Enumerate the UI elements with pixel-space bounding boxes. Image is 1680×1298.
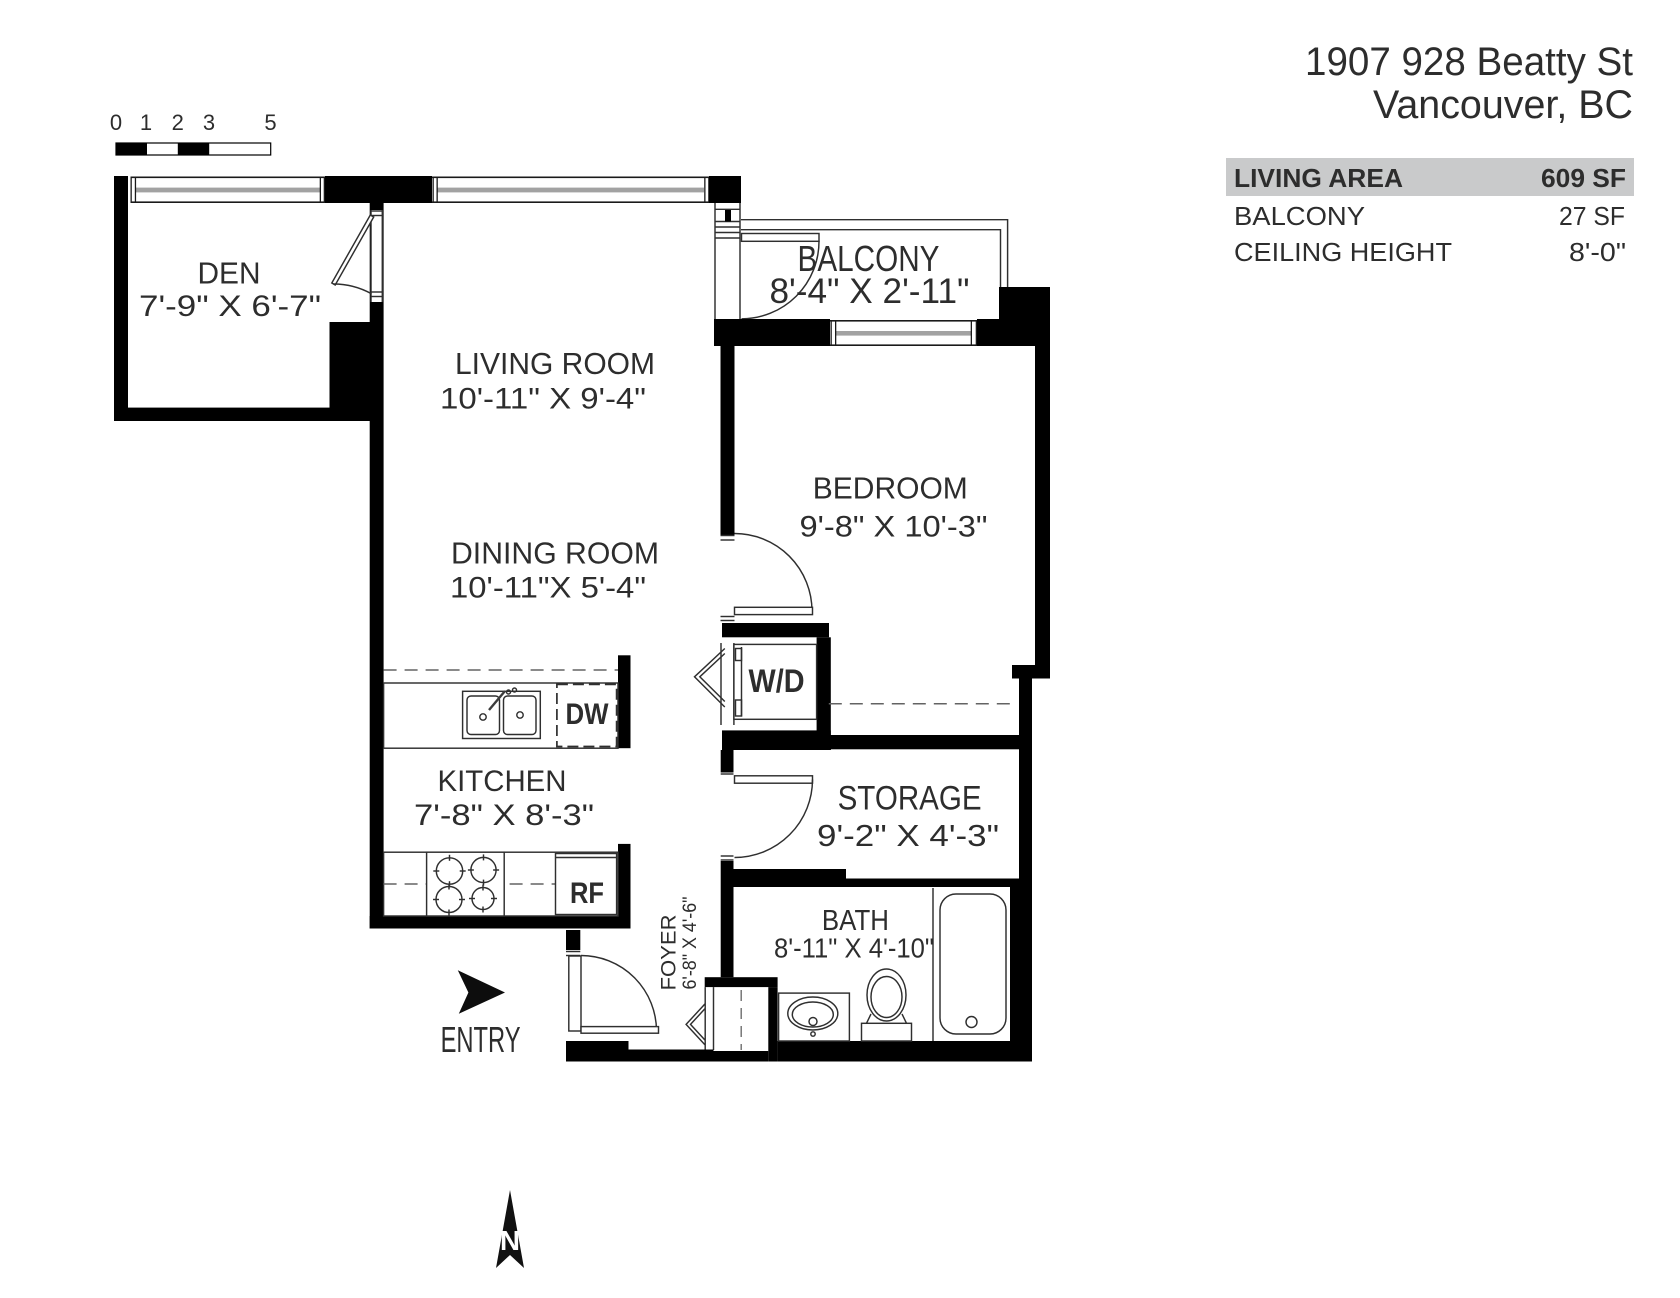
svg-text:10'-11"X 5'-4": 10'-11"X 5'-4" (450, 572, 646, 605)
svg-text:BALCONY: BALCONY (1234, 201, 1365, 231)
svg-text:BEDROOM: BEDROOM (813, 470, 968, 505)
svg-text:2: 2 (172, 110, 184, 135)
svg-text:ENTRY: ENTRY (441, 1019, 521, 1060)
svg-text:1: 1 (140, 110, 152, 135)
svg-text:CEILING HEIGHT: CEILING HEIGHT (1234, 237, 1452, 267)
svg-text:DEN: DEN (198, 256, 261, 291)
svg-text:LIVING ROOM: LIVING ROOM (455, 346, 655, 381)
svg-text:N: N (500, 1225, 520, 1256)
svg-text:7'-8" X 8'-3": 7'-8" X 8'-3" (414, 799, 594, 832)
svg-text:KITCHEN: KITCHEN (438, 765, 567, 798)
svg-text:STORAGE: STORAGE (838, 780, 982, 818)
svg-text:9'-8" X 10'-3": 9'-8" X 10'-3" (800, 511, 988, 544)
svg-text:LIVING AREA: LIVING AREA (1234, 163, 1403, 193)
svg-text:W/D: W/D (749, 663, 805, 699)
svg-text:RF: RF (570, 877, 604, 910)
svg-text:Vancouver, BC: Vancouver, BC (1373, 83, 1633, 127)
svg-text:FOYER: FOYER (658, 915, 681, 991)
svg-text:10'-11" X 9'-4": 10'-11" X 9'-4" (440, 383, 646, 416)
svg-text:7'-9" X 6'-7": 7'-9" X 6'-7" (139, 290, 321, 323)
svg-text:DINING ROOM: DINING ROOM (451, 536, 659, 571)
svg-text:609 SF: 609 SF (1541, 163, 1626, 193)
svg-text:5: 5 (264, 110, 276, 135)
svg-text:8'-4" X 2'-11": 8'-4" X 2'-11" (770, 272, 970, 311)
svg-text:27 SF: 27 SF (1559, 201, 1625, 231)
svg-text:6'-8" X 4'-6": 6'-8" X 4'-6" (680, 897, 701, 990)
svg-text:1907 928 Beatty St: 1907 928 Beatty St (1305, 40, 1633, 84)
svg-text:8'-11" X 4'-10": 8'-11" X 4'-10" (774, 933, 934, 964)
svg-text:8'-0": 8'-0" (1569, 237, 1626, 267)
svg-text:DW: DW (566, 698, 610, 731)
svg-text:0: 0 (110, 110, 122, 135)
svg-text:3: 3 (203, 110, 215, 135)
svg-text:9'-2" X 4'-3": 9'-2" X 4'-3" (817, 818, 999, 853)
